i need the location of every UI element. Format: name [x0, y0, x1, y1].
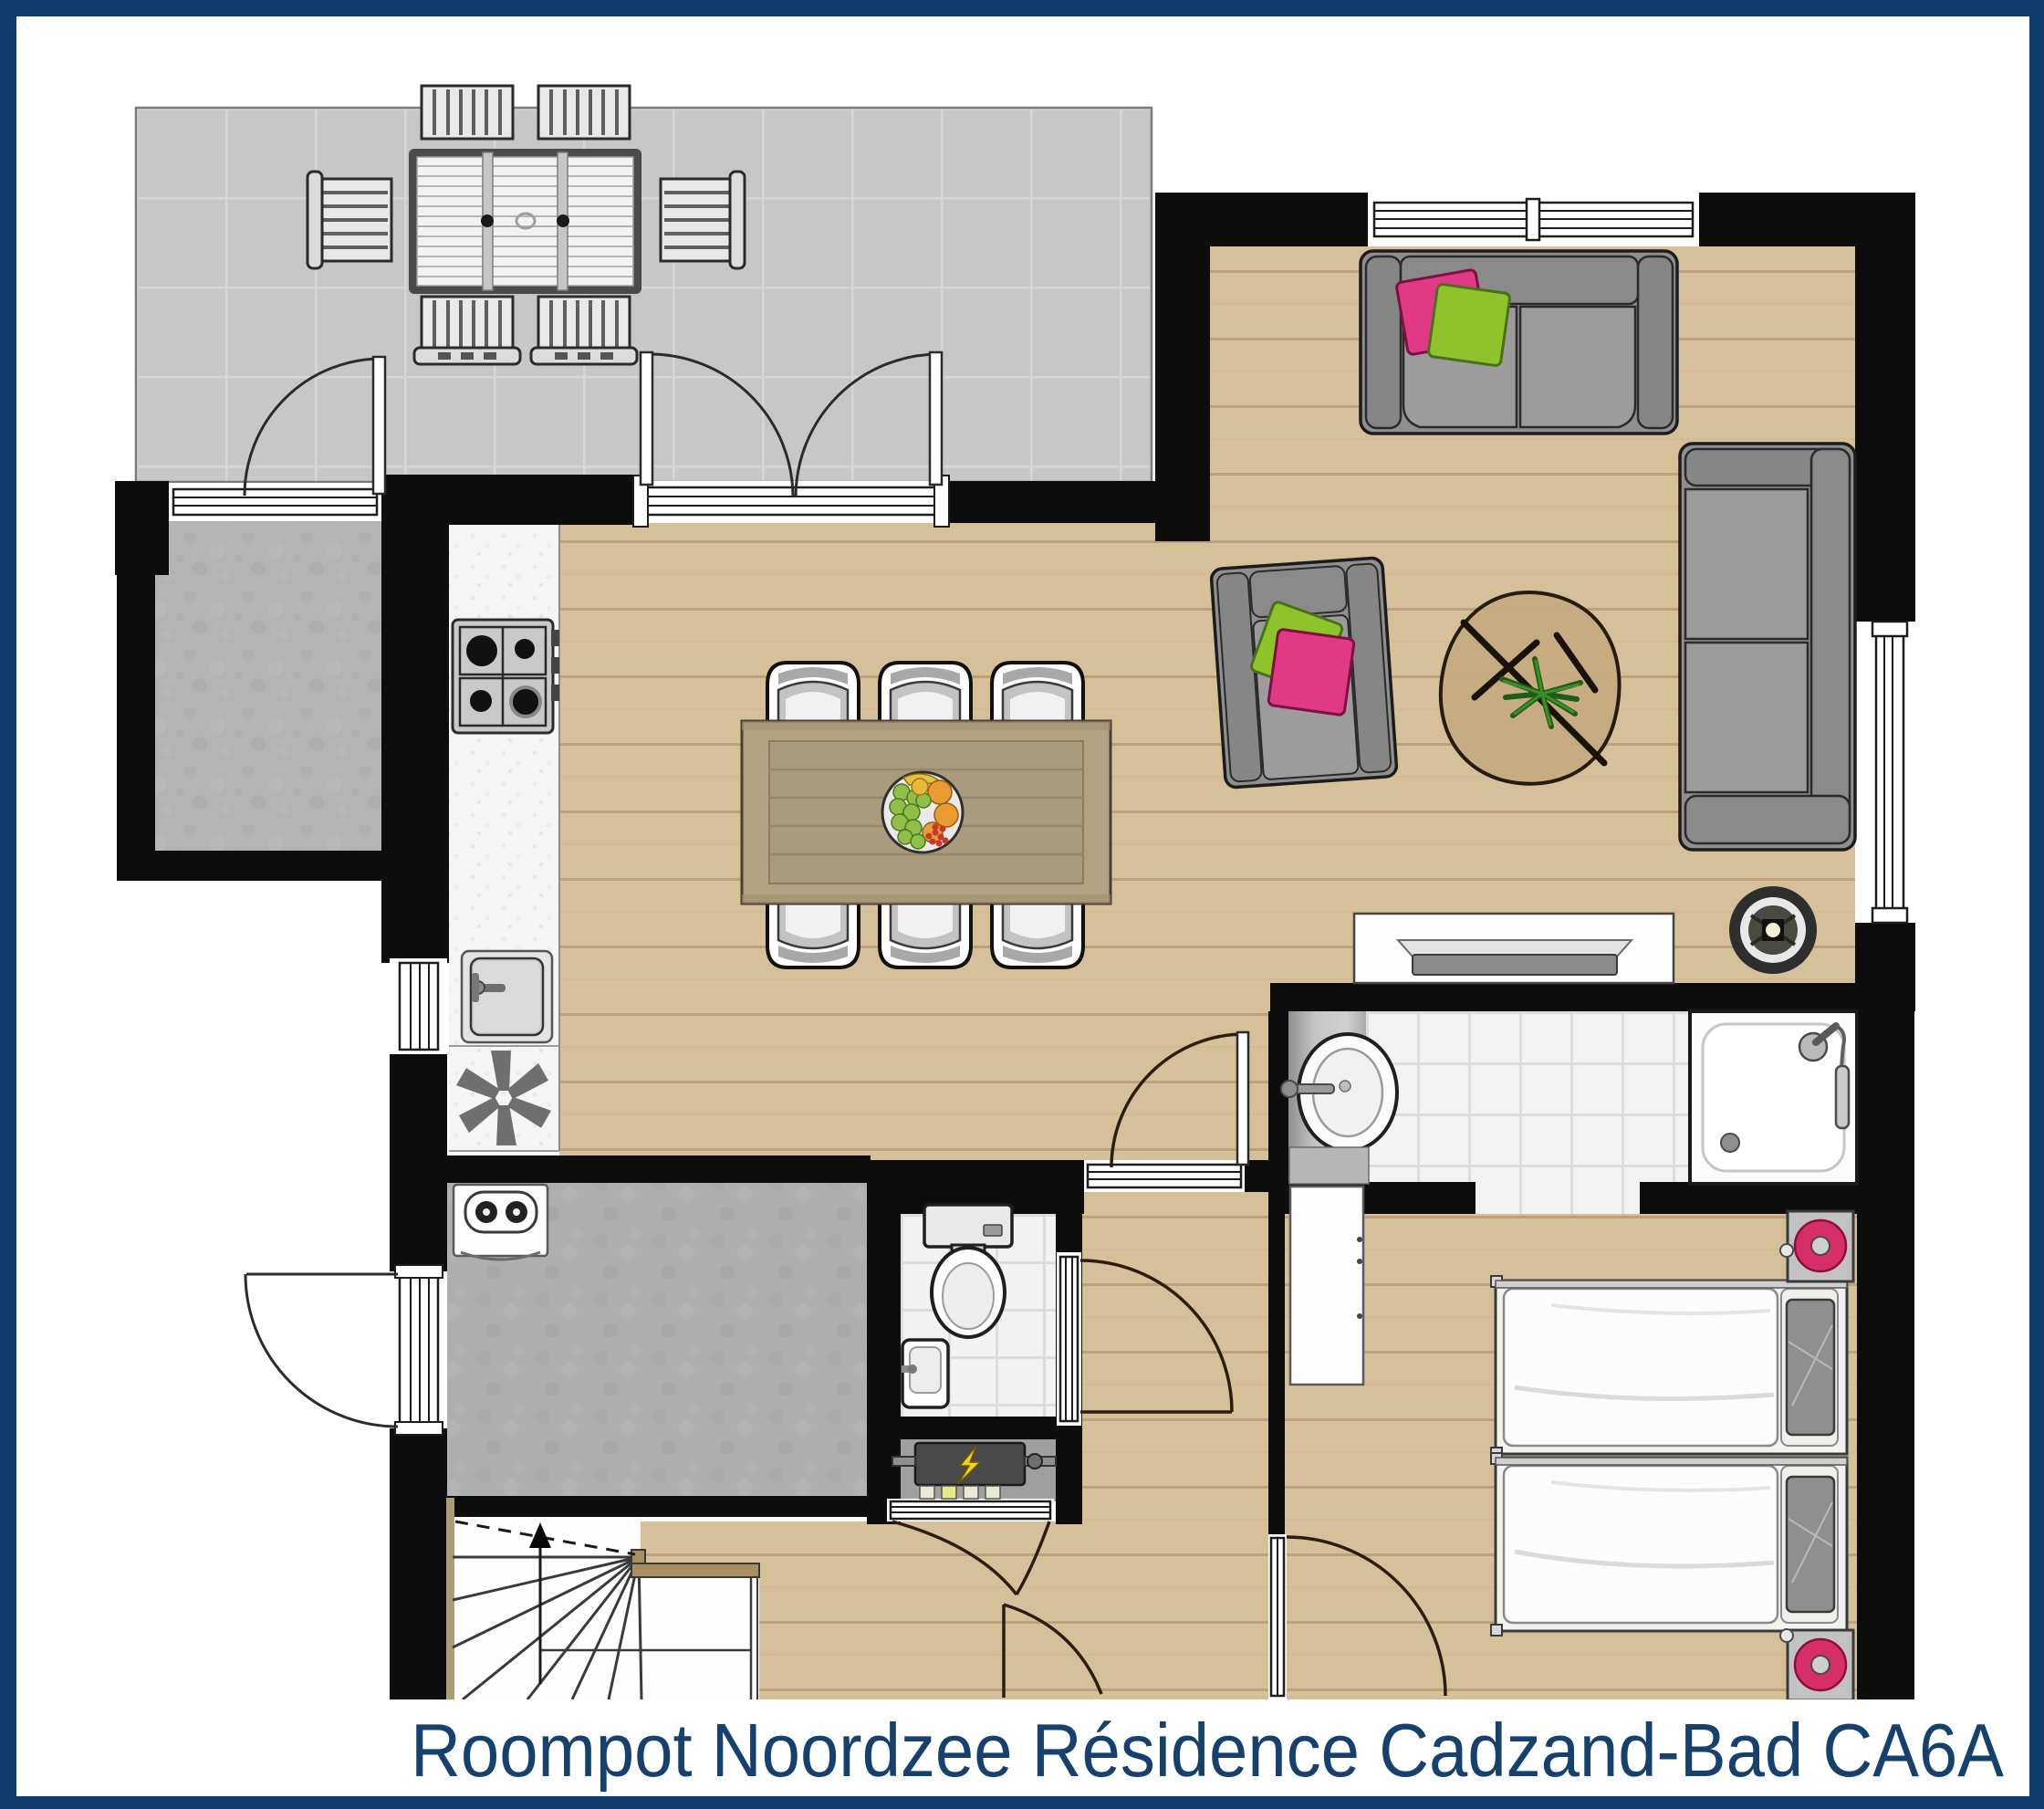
svg-text:Roompot Noordzee Résidence Cad: Roompot Noordzee Résidence Cadzand-Bad C… — [411, 1708, 2005, 1793]
